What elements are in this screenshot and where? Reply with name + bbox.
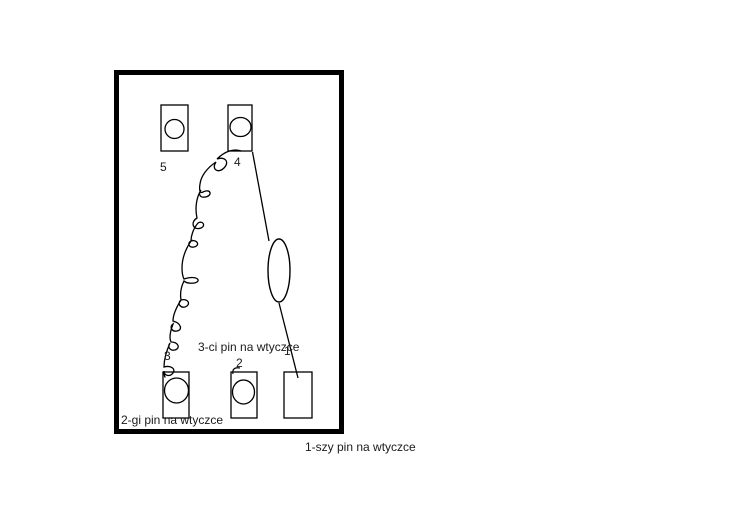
- diagram-drawing: [0, 0, 742, 511]
- pin5-hole: [165, 120, 184, 139]
- diagram-canvas: 5 4 3 2 1 3-ci pin na wtyczce 2-gi pin n…: [0, 0, 742, 511]
- pin3-label: 3: [164, 350, 171, 362]
- pin4-label: 4: [234, 156, 241, 168]
- pin3-hole: [165, 378, 189, 403]
- pin4-socket: [228, 105, 252, 151]
- caption-third-pin: 3-ci pin na wtyczce: [198, 341, 299, 353]
- inline-component-ellipse: [268, 239, 290, 302]
- pin3-socket: [163, 372, 189, 418]
- pin4-hole: [230, 118, 251, 137]
- pin2-hole: [233, 380, 255, 404]
- pin5-label: 5: [160, 161, 167, 173]
- caption-second-pin: 2-gi pin na wtyczce: [121, 414, 223, 426]
- frame-border: [117, 73, 342, 432]
- caption-first-pin: 1-szy pin na wtyczce: [305, 441, 416, 453]
- pin1-socket: [284, 372, 312, 418]
- wire-line-upper: [253, 152, 270, 241]
- pin2-label: 2: [236, 357, 243, 369]
- pin2-socket: [231, 372, 257, 418]
